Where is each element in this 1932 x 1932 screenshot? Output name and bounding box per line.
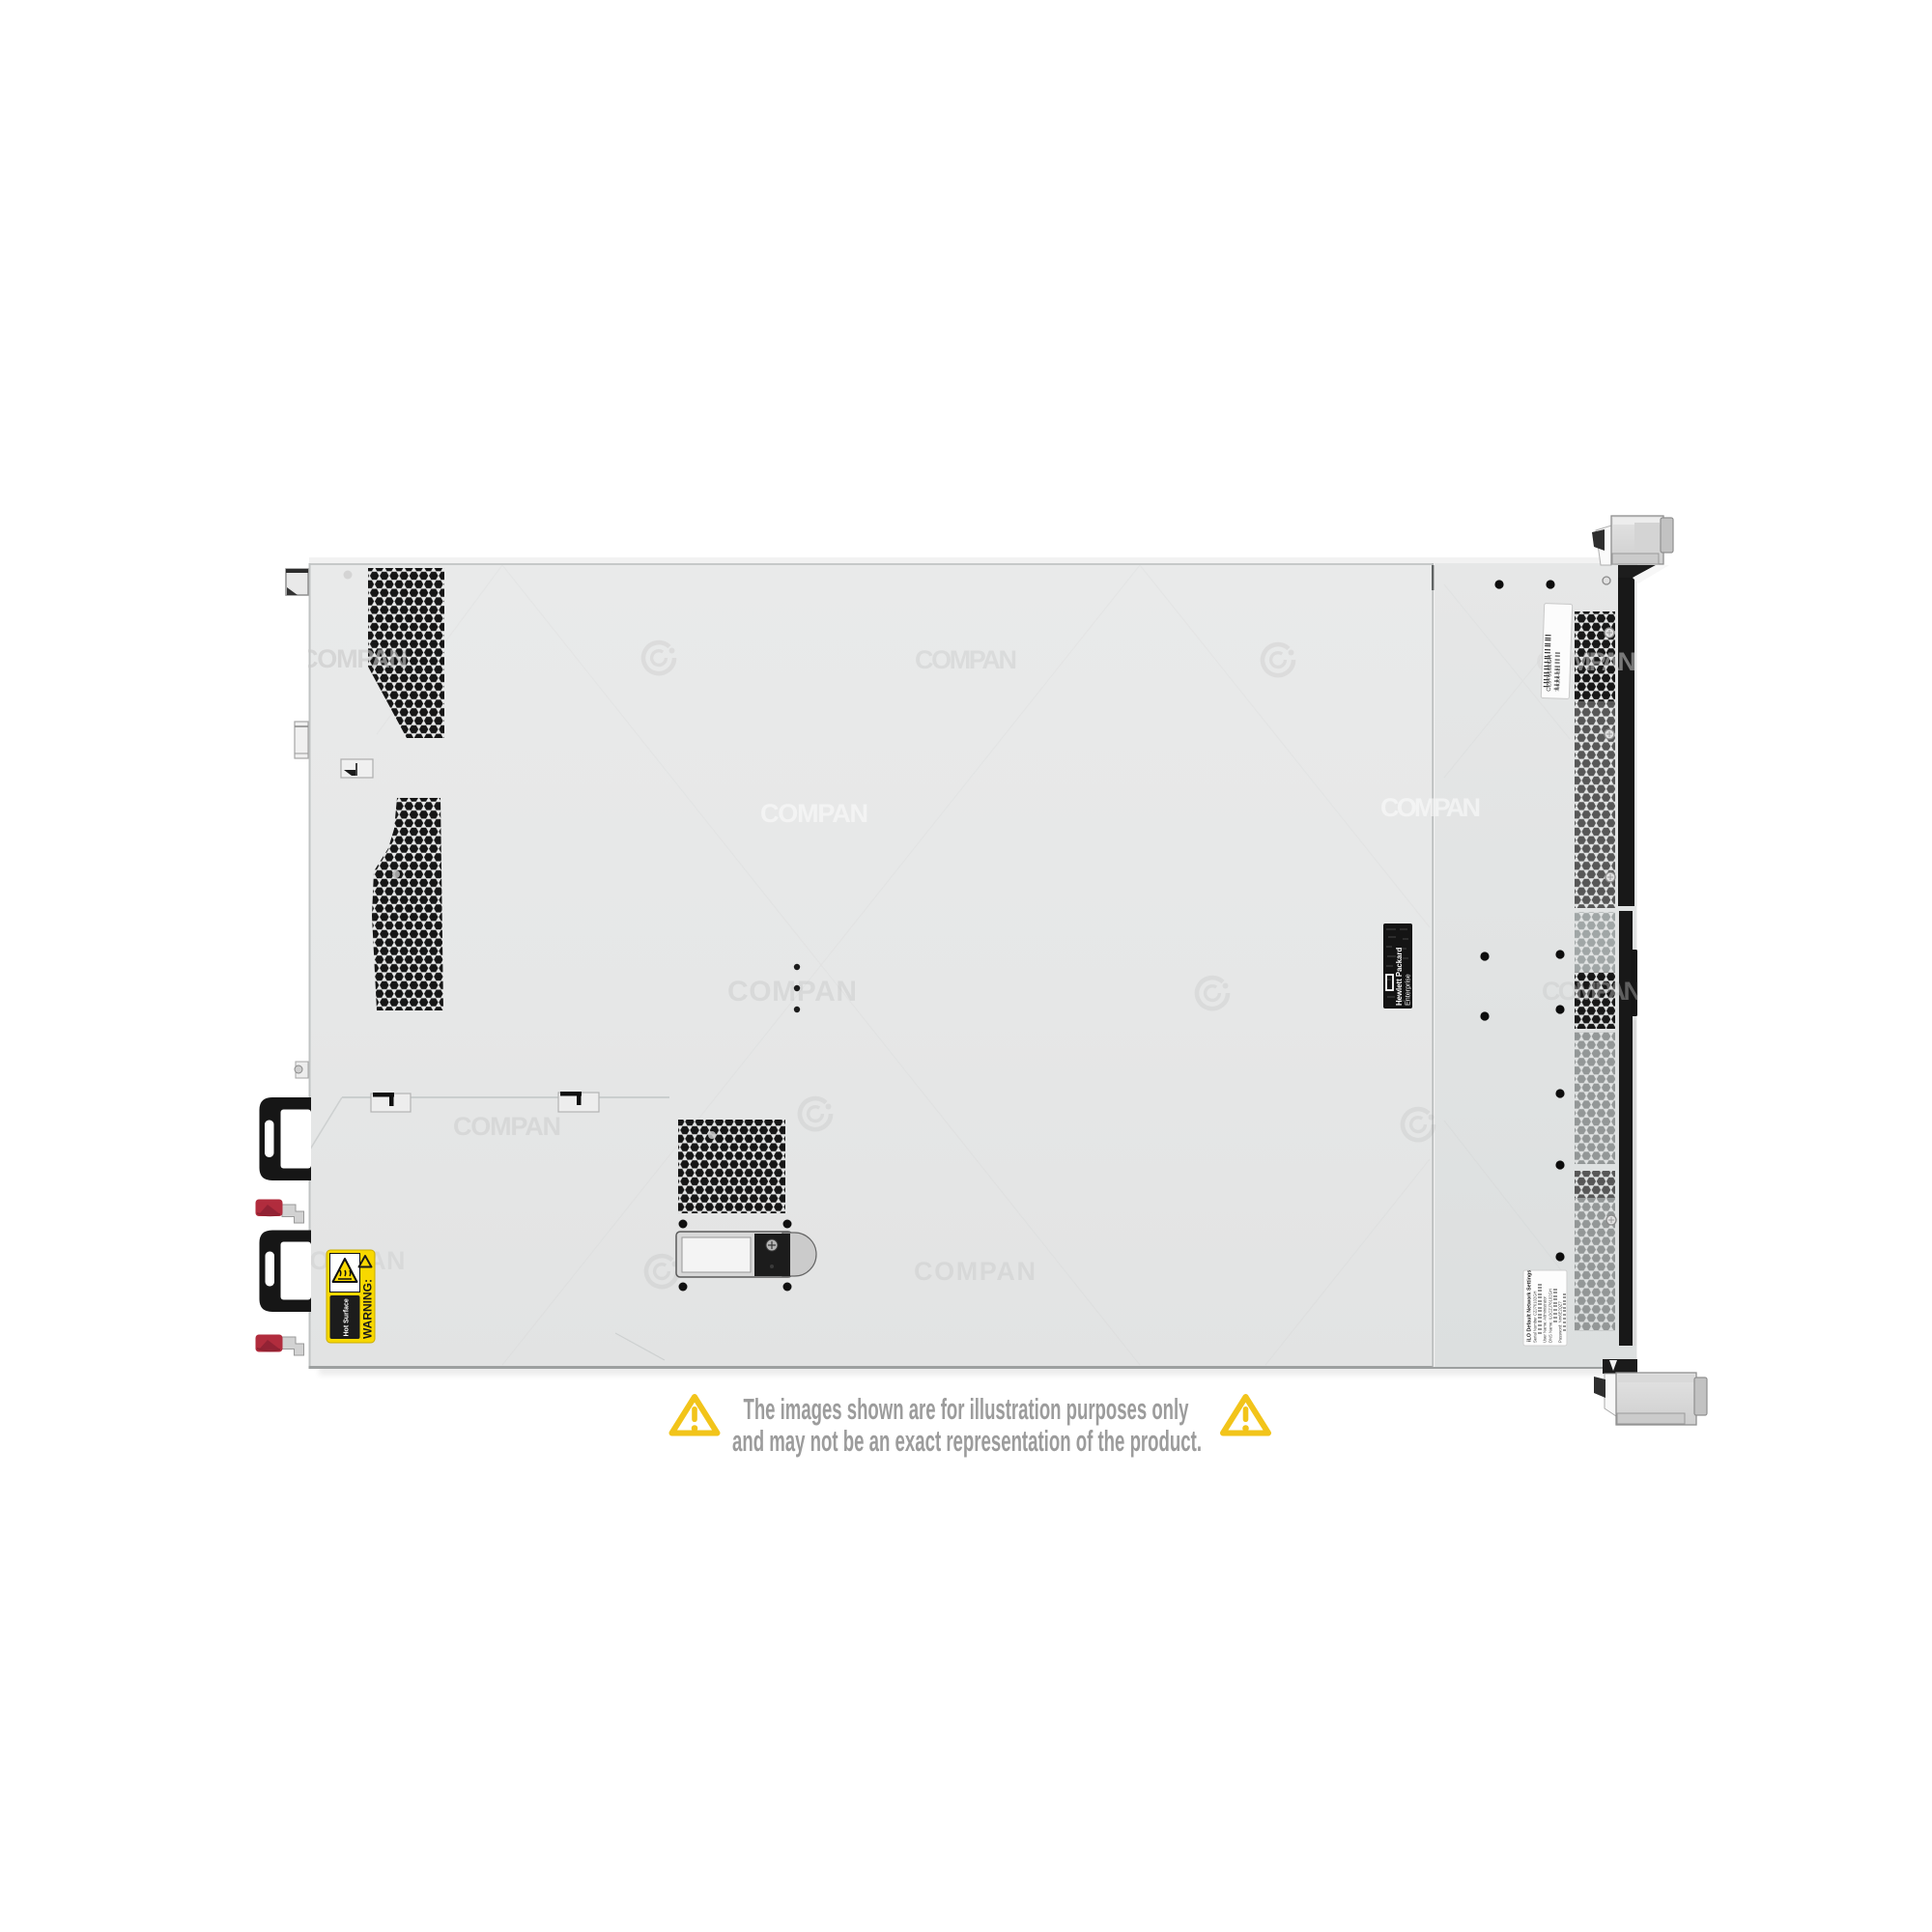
svg-text:and may not be an exact repres: and may not be an exact representation o… (732, 1424, 1202, 1458)
svg-text:DNS Name: ILOCZJ76102GH: DNS Name: ILOCZJ76102GH (1548, 1289, 1553, 1343)
svg-text:COMPAN: COMPAN (1380, 793, 1481, 822)
svg-text:User Name: Administrator: User Name: Administrator (1543, 1295, 1548, 1343)
svg-text:COMPAN: COMPAN (914, 1257, 1036, 1286)
svg-text:COMPAN: COMPAN (453, 1112, 561, 1141)
svg-text:COMPAN: COMPAN (299, 644, 408, 673)
svg-text:WARNING:: WARNING: (361, 1279, 375, 1339)
svg-text:The images shown are for illus: The images shown are for illustration pu… (744, 1392, 1189, 1426)
svg-text:Password: Nm6E2QZ7: Password: Nm6E2QZ7 (1558, 1301, 1563, 1343)
svg-text:COMPAN: COMPAN (915, 645, 1017, 674)
svg-text:Serial Number CZJ76102GH: Serial Number CZJ76102GH (1533, 1291, 1538, 1343)
svg-text:COMPAN: COMPAN (760, 799, 868, 828)
svg-text:Enterprise: Enterprise (1404, 974, 1412, 1006)
svg-text:COMPAN: COMPAN (727, 976, 857, 1008)
svg-text:COMPAN: COMPAN (1542, 977, 1642, 1006)
svg-text:Hot Surface: Hot Surface (344, 1298, 351, 1336)
